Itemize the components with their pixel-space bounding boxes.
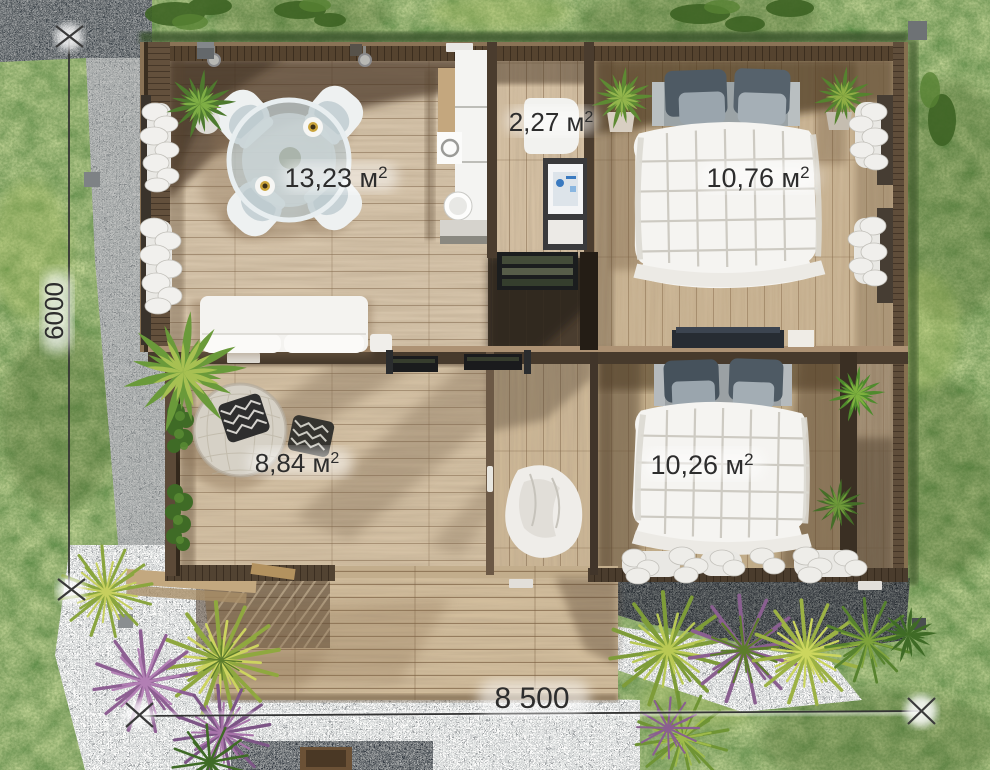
svg-text:10,26 м2: 10,26 м2	[650, 450, 753, 480]
svg-text:10,76 м2: 10,76 м2	[706, 163, 809, 193]
svg-text:2,27 м2: 2,27 м2	[509, 107, 594, 137]
svg-text:13,23 м2: 13,23 м2	[284, 163, 387, 193]
svg-text:6000: 6000	[39, 282, 69, 340]
svg-text:8,84 м2: 8,84 м2	[255, 448, 340, 478]
svg-text:8 500: 8 500	[494, 682, 569, 715]
